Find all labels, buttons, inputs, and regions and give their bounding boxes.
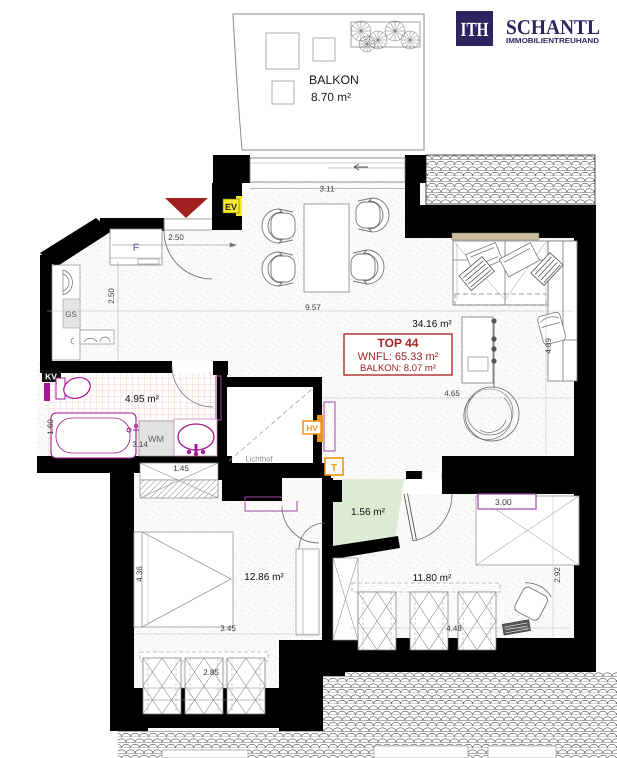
svg-text:4.95 m²: 4.95 m²	[125, 394, 160, 405]
svg-text:4.09: 4.09	[544, 338, 553, 354]
svg-text:KV: KV	[45, 372, 57, 382]
svg-text:T: T	[331, 463, 337, 474]
svg-text:1.56 m²: 1.56 m²	[351, 507, 386, 518]
svg-text:HV: HV	[306, 424, 318, 433]
svg-text:Lichthof: Lichthof	[245, 455, 273, 464]
svg-text:IMMOBILIENTREUHAND: IMMOBILIENTREUHAND	[506, 36, 599, 45]
svg-text:3.11: 3.11	[320, 185, 336, 194]
svg-text:1.60: 1.60	[46, 419, 55, 435]
svg-text:11.80 m²: 11.80 m²	[413, 573, 452, 584]
svg-text:ITH: ITH	[461, 19, 489, 41]
svg-text:F: F	[133, 242, 139, 254]
svg-text:EV: EV	[225, 202, 237, 212]
svg-text:4.48: 4.48	[446, 624, 462, 633]
svg-text:9.57: 9.57	[305, 303, 321, 312]
svg-text:3.45: 3.45	[220, 624, 236, 633]
svg-text:8.70 m²: 8.70 m²	[311, 90, 351, 104]
svg-text:4.36: 4.36	[135, 566, 144, 582]
svg-text:34.16 m²: 34.16 m²	[412, 319, 452, 330]
svg-text:4.65: 4.65	[444, 389, 460, 398]
svg-text:3.00: 3.00	[495, 497, 512, 507]
svg-text:WNFL: 65.33 m²: WNFL: 65.33 m²	[358, 351, 439, 363]
svg-text:GS: GS	[65, 310, 77, 319]
svg-text:TOP 44: TOP 44	[378, 336, 419, 350]
svg-text:2.85: 2.85	[203, 668, 219, 677]
svg-text:WM: WM	[148, 434, 164, 444]
svg-text:2.92: 2.92	[553, 567, 562, 583]
svg-text:2.50: 2.50	[168, 233, 184, 242]
svg-text:3.14: 3.14	[132, 440, 148, 449]
svg-text:BALKON: BALKON	[309, 73, 359, 87]
svg-text:BALKON: 8.07 m²: BALKON: 8.07 m²	[360, 363, 436, 374]
svg-text:2.50: 2.50	[107, 288, 116, 304]
svg-text:12.86 m²: 12.86 m²	[244, 572, 284, 583]
svg-text:1.45: 1.45	[173, 464, 189, 473]
